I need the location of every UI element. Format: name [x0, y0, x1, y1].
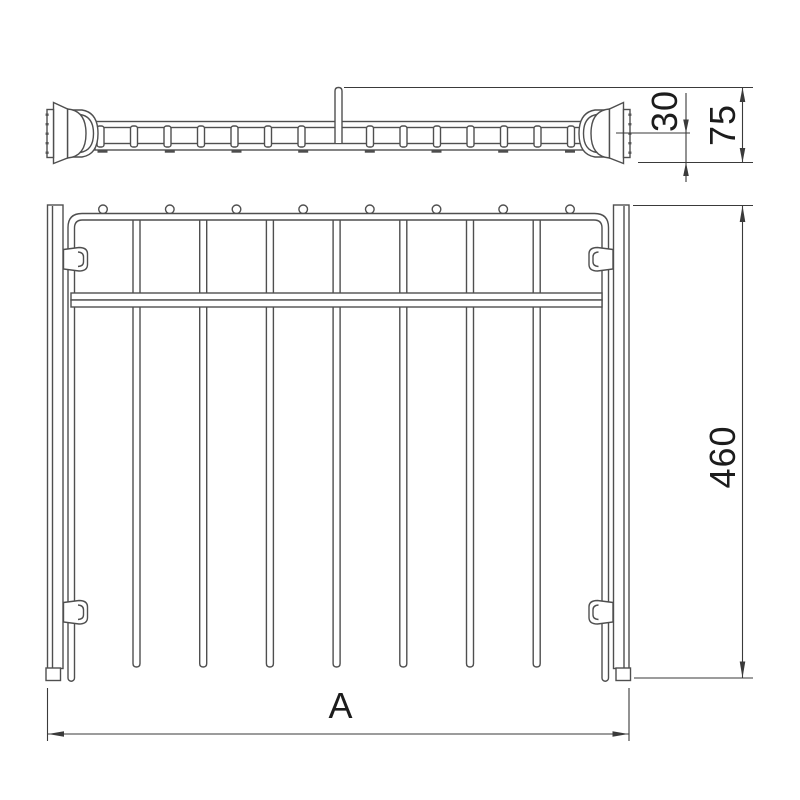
clip-lower-right — [589, 601, 613, 625]
dimension-label-460: 460 — [705, 425, 741, 488]
hanging-bars — [133, 217, 540, 667]
end-cap-left — [46, 103, 98, 164]
dimension-label-30: 30 — [647, 90, 683, 132]
mounting-rail-right — [589, 205, 631, 681]
dimension-label-a: A — [328, 688, 353, 724]
clip-upper-left — [64, 248, 88, 272]
technical-drawing-page: 30 75 460 A — [0, 0, 800, 800]
center-pin — [335, 88, 342, 144]
clip-upper-right — [589, 248, 613, 272]
clip-lower-left — [64, 601, 88, 625]
hook-rings — [99, 205, 575, 214]
cross-rails — [71, 293, 602, 307]
rail-foot — [46, 668, 61, 681]
dimension-label-75: 75 — [705, 104, 741, 146]
mounting-rail-left — [46, 205, 88, 681]
top-view-rail-elevation — [46, 88, 632, 164]
plan-view-rack-frame — [46, 205, 631, 681]
